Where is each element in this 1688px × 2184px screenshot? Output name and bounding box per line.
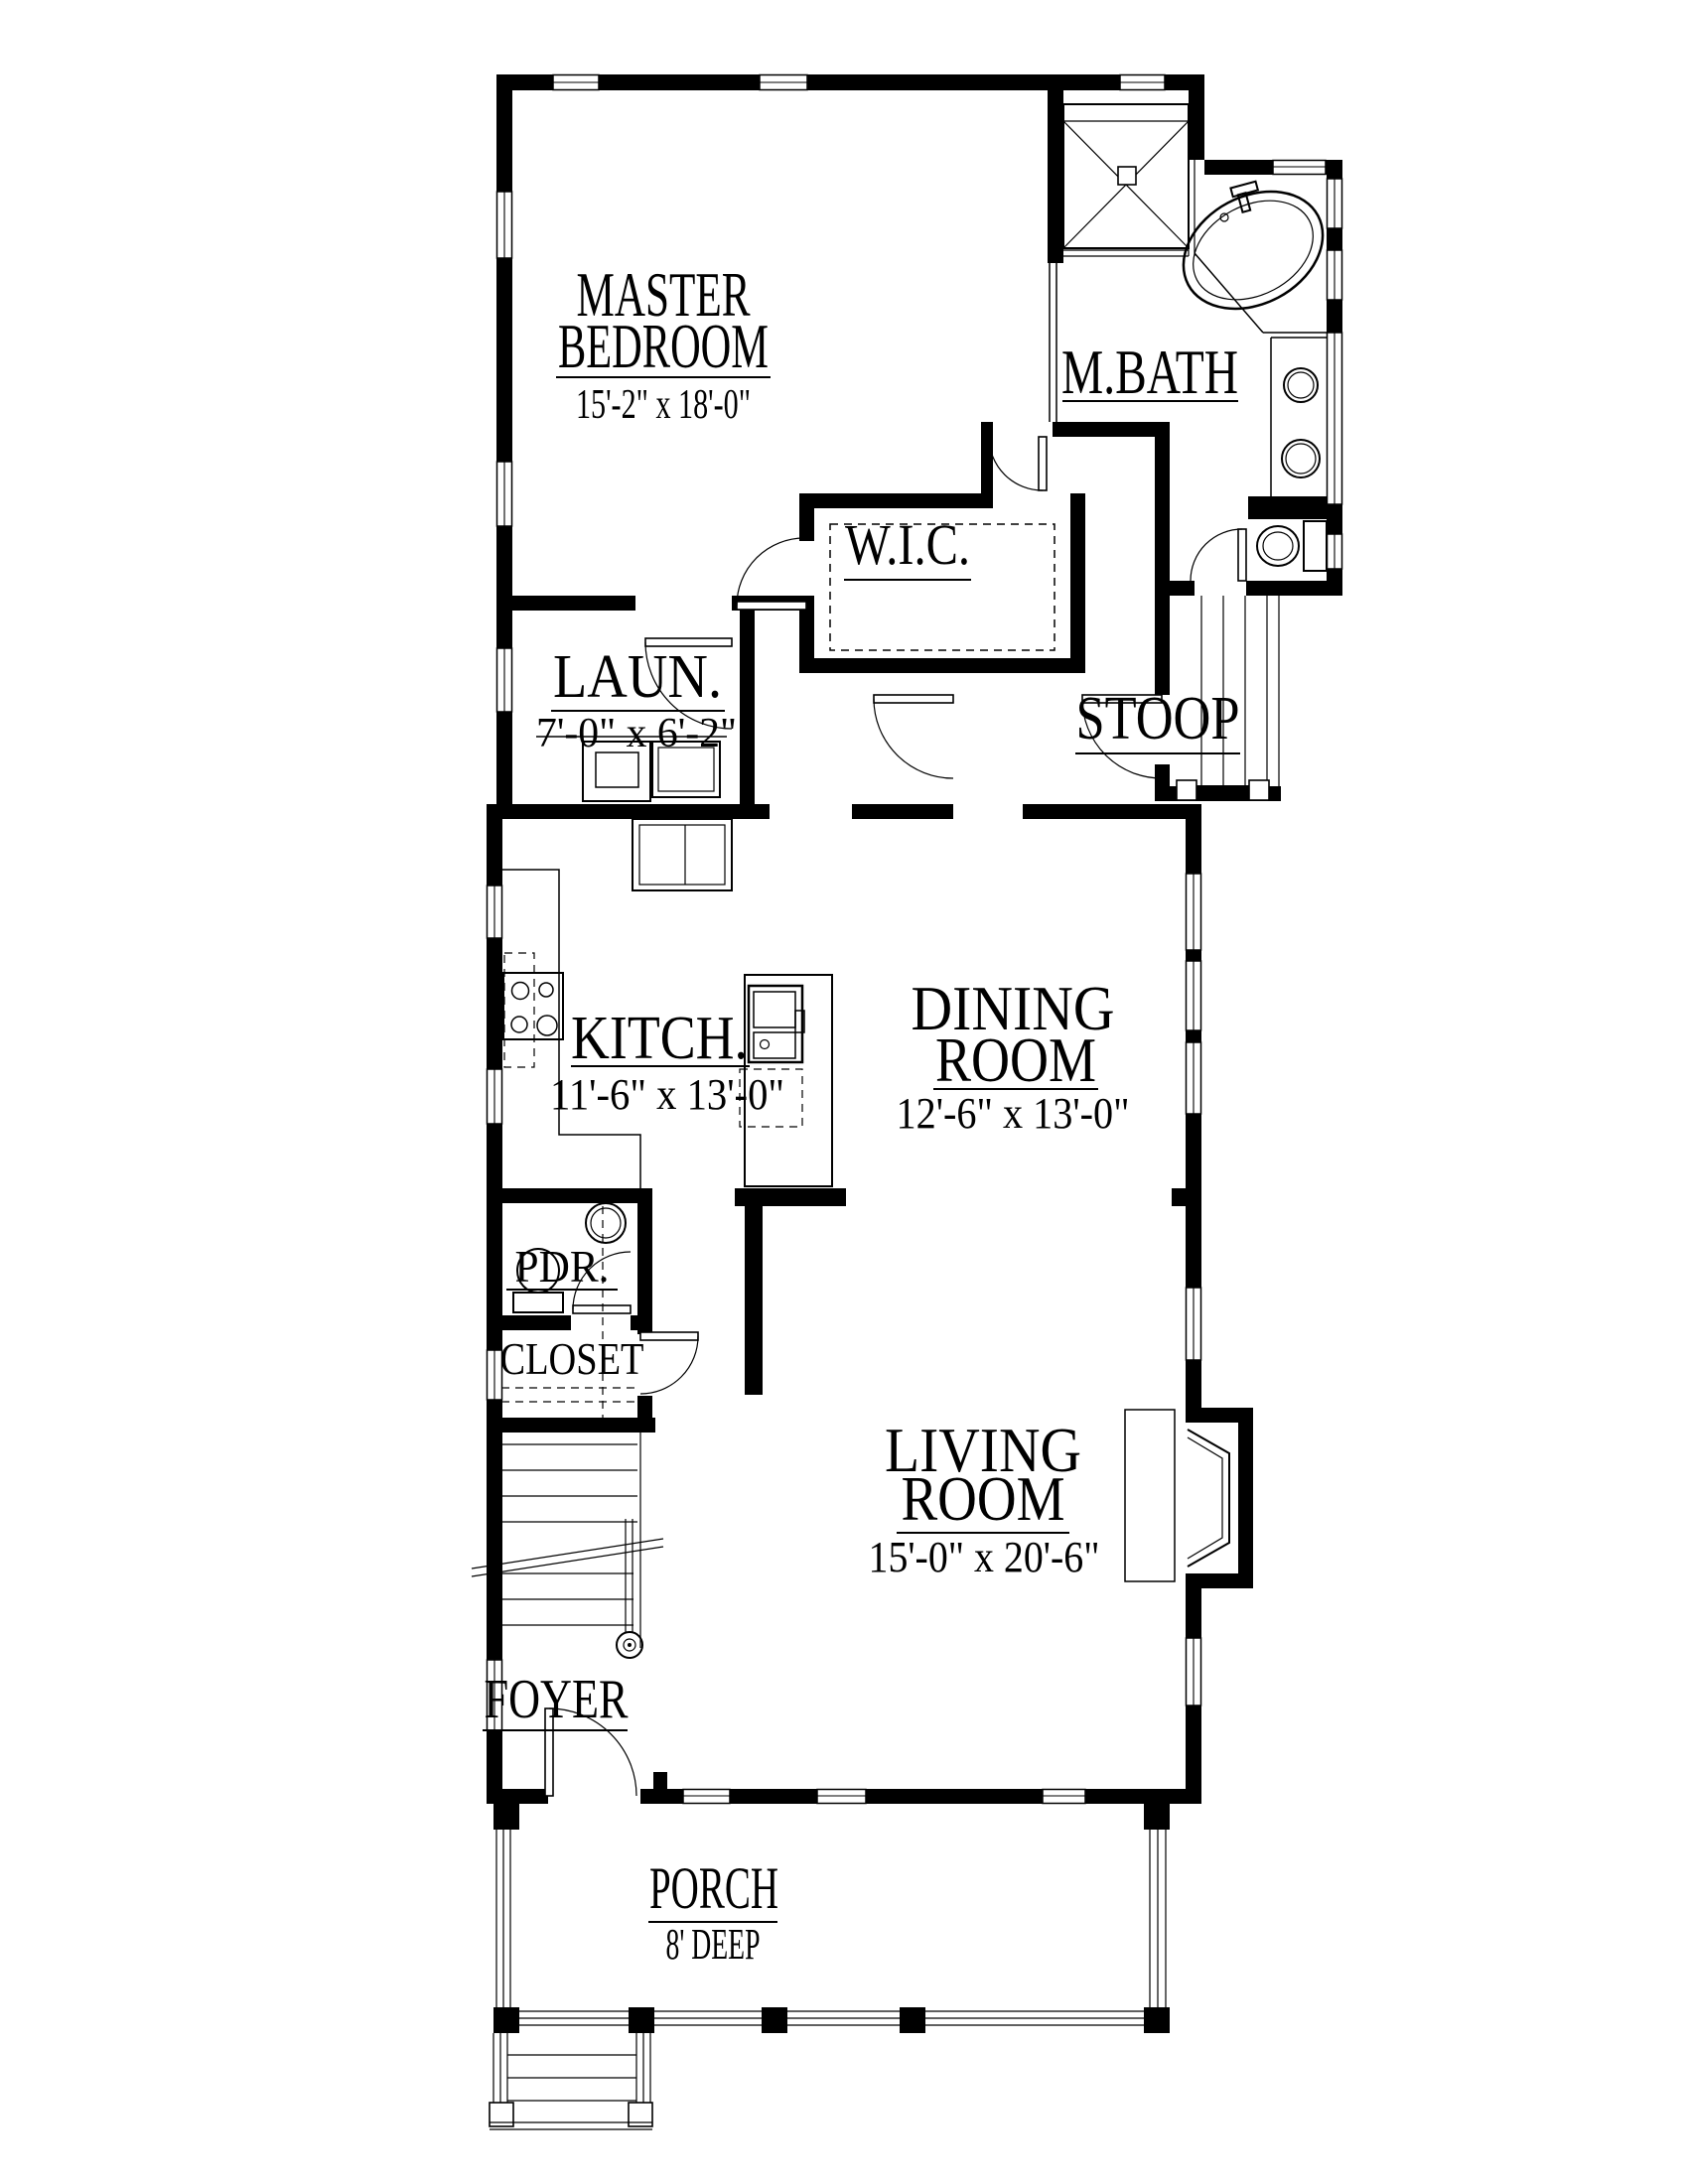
window bbox=[553, 75, 599, 90]
stove-part bbox=[537, 1016, 557, 1035]
walls-part bbox=[1189, 90, 1204, 160]
tub-faucet bbox=[1220, 182, 1258, 221]
walls-part bbox=[1246, 581, 1342, 596]
window bbox=[1328, 250, 1342, 300]
stoop-rail-newel bbox=[1177, 780, 1196, 800]
refrigerator-part bbox=[633, 819, 732, 890]
master-bedroom-door-part bbox=[1039, 437, 1047, 490]
porch-column bbox=[493, 2007, 519, 2033]
walls-part bbox=[1186, 1408, 1253, 1423]
walls-part bbox=[599, 74, 760, 90]
porch-column bbox=[1144, 1804, 1170, 1830]
stove bbox=[503, 953, 563, 1067]
powder-room-door-part bbox=[573, 1305, 631, 1313]
vanity-part bbox=[1288, 372, 1314, 398]
walls-part bbox=[1186, 1588, 1201, 1638]
window bbox=[760, 75, 807, 90]
kitchen-label: KITCH. bbox=[571, 1005, 748, 1072]
floor-plan: MASTER BEDROOM 15'-2" x 18'-0" M.BATH W.… bbox=[0, 0, 1688, 2184]
walls-part bbox=[487, 1315, 571, 1330]
pdr-sink bbox=[586, 1203, 626, 1243]
stove-part bbox=[539, 983, 553, 997]
porch-label: PORCH bbox=[649, 1855, 778, 1921]
walls-part bbox=[735, 1188, 846, 1206]
walls-part bbox=[496, 74, 512, 192]
walls-part bbox=[496, 526, 512, 648]
walls-part bbox=[1023, 804, 1201, 819]
walls-part bbox=[807, 74, 1120, 90]
labels: MASTER BEDROOM 15'-2" x 18'-0" M.BATH W.… bbox=[483, 259, 1240, 1969]
porch-dims: 8' DEEP bbox=[666, 1920, 761, 1969]
pdr-label: PDR. bbox=[515, 1241, 610, 1292]
stove-part bbox=[504, 953, 534, 1067]
window bbox=[488, 1069, 502, 1124]
wic-door-part bbox=[737, 538, 804, 606]
walls-part bbox=[799, 493, 814, 541]
stoop-label: STOOP bbox=[1076, 685, 1240, 752]
closet-label: CLOSET bbox=[500, 1333, 644, 1384]
window bbox=[488, 886, 502, 938]
dining-dims: 12'-6" x 13'-0" bbox=[897, 1089, 1130, 1138]
walls-part bbox=[496, 596, 635, 611]
porch-column bbox=[493, 1804, 519, 1830]
pdr-toilet-part bbox=[513, 1293, 563, 1312]
window bbox=[1328, 534, 1342, 569]
walls-part bbox=[637, 1188, 652, 1334]
walls-part bbox=[852, 804, 953, 819]
vanity-sink bbox=[1284, 368, 1318, 402]
refrigerator-part bbox=[639, 825, 725, 885]
walls-part bbox=[1186, 950, 1201, 961]
stair-railing-part bbox=[628, 1643, 632, 1647]
walls-part bbox=[487, 938, 502, 1069]
window bbox=[497, 648, 512, 712]
living-label-2: ROOM bbox=[902, 1463, 1065, 1534]
refrigerator bbox=[633, 819, 732, 890]
walls-part bbox=[487, 1400, 502, 1660]
walls-part bbox=[487, 1418, 655, 1433]
porch-steps bbox=[490, 2033, 652, 2129]
vanity bbox=[1271, 338, 1327, 496]
kitchen-sink-part bbox=[749, 986, 802, 1062]
living-dims: 15'-0" x 20'-6" bbox=[869, 1533, 1100, 1581]
kitchen-sink-part bbox=[761, 1040, 770, 1049]
walls-part bbox=[1327, 160, 1342, 179]
master-bath-door bbox=[1191, 529, 1246, 581]
walls-part bbox=[1248, 496, 1327, 519]
walls-part bbox=[1327, 300, 1342, 333]
porch-column bbox=[762, 2007, 787, 2033]
walls-part bbox=[799, 658, 1085, 673]
wic-door-part bbox=[737, 602, 806, 610]
vanity-sink bbox=[1282, 440, 1320, 478]
window bbox=[1187, 874, 1201, 950]
window bbox=[1328, 179, 1342, 228]
laundry-label: LAUN. bbox=[553, 643, 722, 711]
walls-part bbox=[1070, 493, 1085, 673]
vanity-part bbox=[1286, 444, 1316, 474]
walls-part bbox=[1155, 437, 1170, 695]
porch-structure bbox=[490, 1804, 1170, 2129]
bathtub-part bbox=[1163, 169, 1342, 333]
walls-part bbox=[653, 1772, 667, 1789]
window bbox=[1187, 1042, 1201, 1114]
closet-door-part bbox=[640, 1336, 698, 1394]
washer-part bbox=[596, 752, 638, 787]
wic-label: W.I.C. bbox=[845, 512, 970, 577]
walls-part bbox=[1186, 1114, 1201, 1288]
walls-part bbox=[1204, 160, 1273, 175]
back-door-part bbox=[874, 695, 953, 703]
master-bedroom-door bbox=[989, 437, 1047, 490]
master-bath-door-part bbox=[1238, 529, 1246, 581]
walls-part bbox=[640, 1789, 683, 1804]
mbath-label: M.BATH bbox=[1061, 337, 1238, 407]
walls-part bbox=[799, 493, 993, 508]
walls-part bbox=[1085, 1789, 1201, 1804]
kitchen-dims: 11'-6" x 13'-0" bbox=[550, 1070, 784, 1119]
porch-column bbox=[1144, 2007, 1170, 2033]
master-bath-door-part bbox=[1191, 529, 1242, 581]
stove-part bbox=[512, 983, 529, 1000]
walls-part bbox=[1327, 504, 1342, 534]
walls-part bbox=[1186, 804, 1201, 874]
window bbox=[683, 1790, 730, 1804]
walls-part bbox=[1165, 74, 1204, 90]
walls-part bbox=[487, 1188, 652, 1203]
fireplace-part bbox=[1188, 1437, 1222, 1559]
window bbox=[1187, 1288, 1201, 1360]
walls-part bbox=[1186, 1573, 1253, 1588]
bathtub bbox=[1163, 169, 1342, 333]
back-door bbox=[874, 695, 953, 778]
master-bedroom-door-part bbox=[989, 437, 1043, 490]
window bbox=[1043, 1790, 1085, 1804]
half-wall bbox=[1050, 263, 1056, 422]
closet-shelving bbox=[501, 1388, 635, 1402]
walls-part bbox=[496, 74, 553, 90]
window bbox=[817, 1790, 866, 1804]
stair-railing bbox=[617, 1519, 642, 1658]
walls-part bbox=[487, 1789, 548, 1804]
powder-room-fixtures-part bbox=[591, 1208, 621, 1238]
walls-part bbox=[745, 1206, 763, 1395]
kitchen-sink-part bbox=[754, 992, 795, 1027]
shower bbox=[1063, 104, 1195, 256]
stove-part bbox=[511, 1017, 527, 1032]
window bbox=[1273, 161, 1326, 175]
closet-door bbox=[640, 1332, 698, 1394]
fireplace bbox=[1125, 1410, 1229, 1581]
window bbox=[1120, 75, 1165, 90]
walls-part bbox=[1048, 87, 1063, 263]
walls-part bbox=[496, 712, 512, 804]
laundry-dims: 7'-0" x 6'-2" bbox=[536, 711, 737, 756]
shower-drain bbox=[1118, 167, 1136, 185]
master-dims: 15'-2" x 18'-0" bbox=[576, 382, 751, 428]
foyer-label: FOYER bbox=[485, 1669, 630, 1730]
window bbox=[1187, 961, 1201, 1030]
stoop-rail-newel bbox=[1249, 780, 1269, 800]
walls-part bbox=[1172, 1188, 1186, 1206]
window bbox=[1187, 1638, 1201, 1706]
porch-column bbox=[629, 2007, 654, 2033]
toilet-mbath-part bbox=[1304, 521, 1327, 571]
walls-part bbox=[740, 596, 755, 804]
walls-part bbox=[1238, 1423, 1253, 1573]
walls-part bbox=[866, 1789, 1043, 1804]
walls-part bbox=[730, 1789, 817, 1804]
back-door-part bbox=[874, 699, 953, 778]
porch-column bbox=[900, 2007, 925, 2033]
dining-label-2: ROOM bbox=[935, 1024, 1096, 1095]
kitchen-sink bbox=[749, 986, 804, 1062]
walls-part bbox=[1186, 1360, 1201, 1408]
master-label-2: BEDROOM bbox=[558, 311, 769, 381]
window bbox=[1328, 333, 1342, 504]
bathtub-part bbox=[1195, 253, 1263, 333]
closet-door-part bbox=[640, 1332, 698, 1340]
window bbox=[497, 462, 512, 526]
hearth bbox=[1125, 1410, 1175, 1581]
walls-part bbox=[496, 258, 512, 462]
toilet-mbath bbox=[1257, 521, 1327, 571]
window bbox=[497, 192, 512, 258]
walls-part bbox=[1186, 1030, 1201, 1042]
walls-part bbox=[1327, 228, 1342, 250]
walls-part bbox=[1155, 764, 1170, 786]
walls-part bbox=[487, 804, 770, 819]
walls-part bbox=[1053, 422, 1170, 437]
toilet-mbath-part bbox=[1263, 532, 1293, 560]
